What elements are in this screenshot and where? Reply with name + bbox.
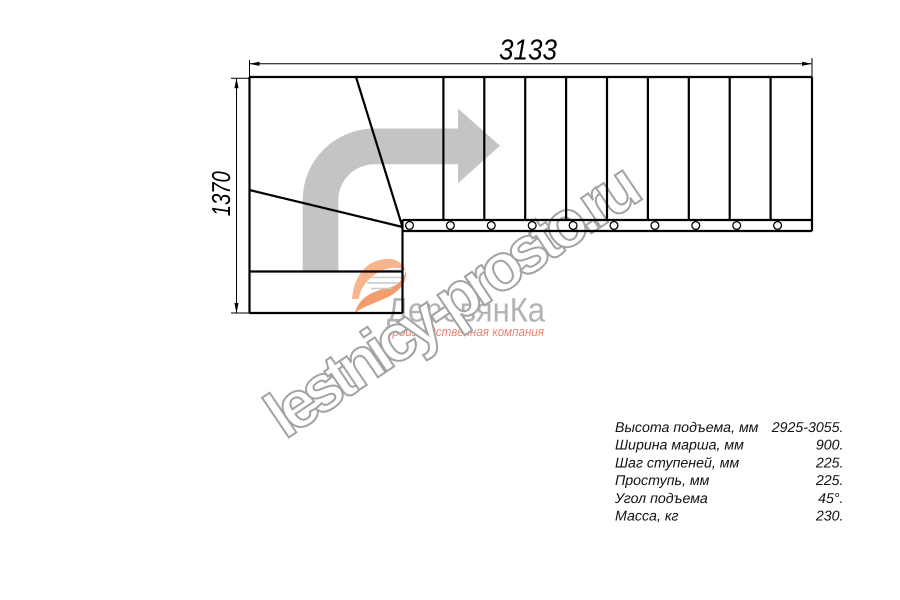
svg-text:Масса, кг: Масса, кг: [615, 509, 679, 525]
svg-text:230.: 230.: [815, 509, 844, 525]
svg-text:1370: 1370: [206, 171, 236, 216]
svg-text:Угол подъема: Угол подъема: [614, 491, 708, 507]
svg-text:225.: 225.: [815, 455, 844, 471]
svg-text:Ширина марша, мм: Ширина марша, мм: [615, 438, 744, 454]
svg-text:900.: 900.: [816, 438, 844, 454]
svg-text:3133: 3133: [499, 35, 557, 67]
svg-text:Шаг ступеней, мм: Шаг ступеней, мм: [615, 455, 739, 471]
svg-text:45°.: 45°.: [818, 491, 843, 507]
svg-text:Проступь, мм: Проступь, мм: [615, 473, 710, 489]
svg-text:2925-3055.: 2925-3055.: [771, 420, 844, 436]
svg-text:225.: 225.: [815, 473, 844, 489]
svg-text:Высота подъема, мм: Высота подъема, мм: [615, 420, 759, 436]
